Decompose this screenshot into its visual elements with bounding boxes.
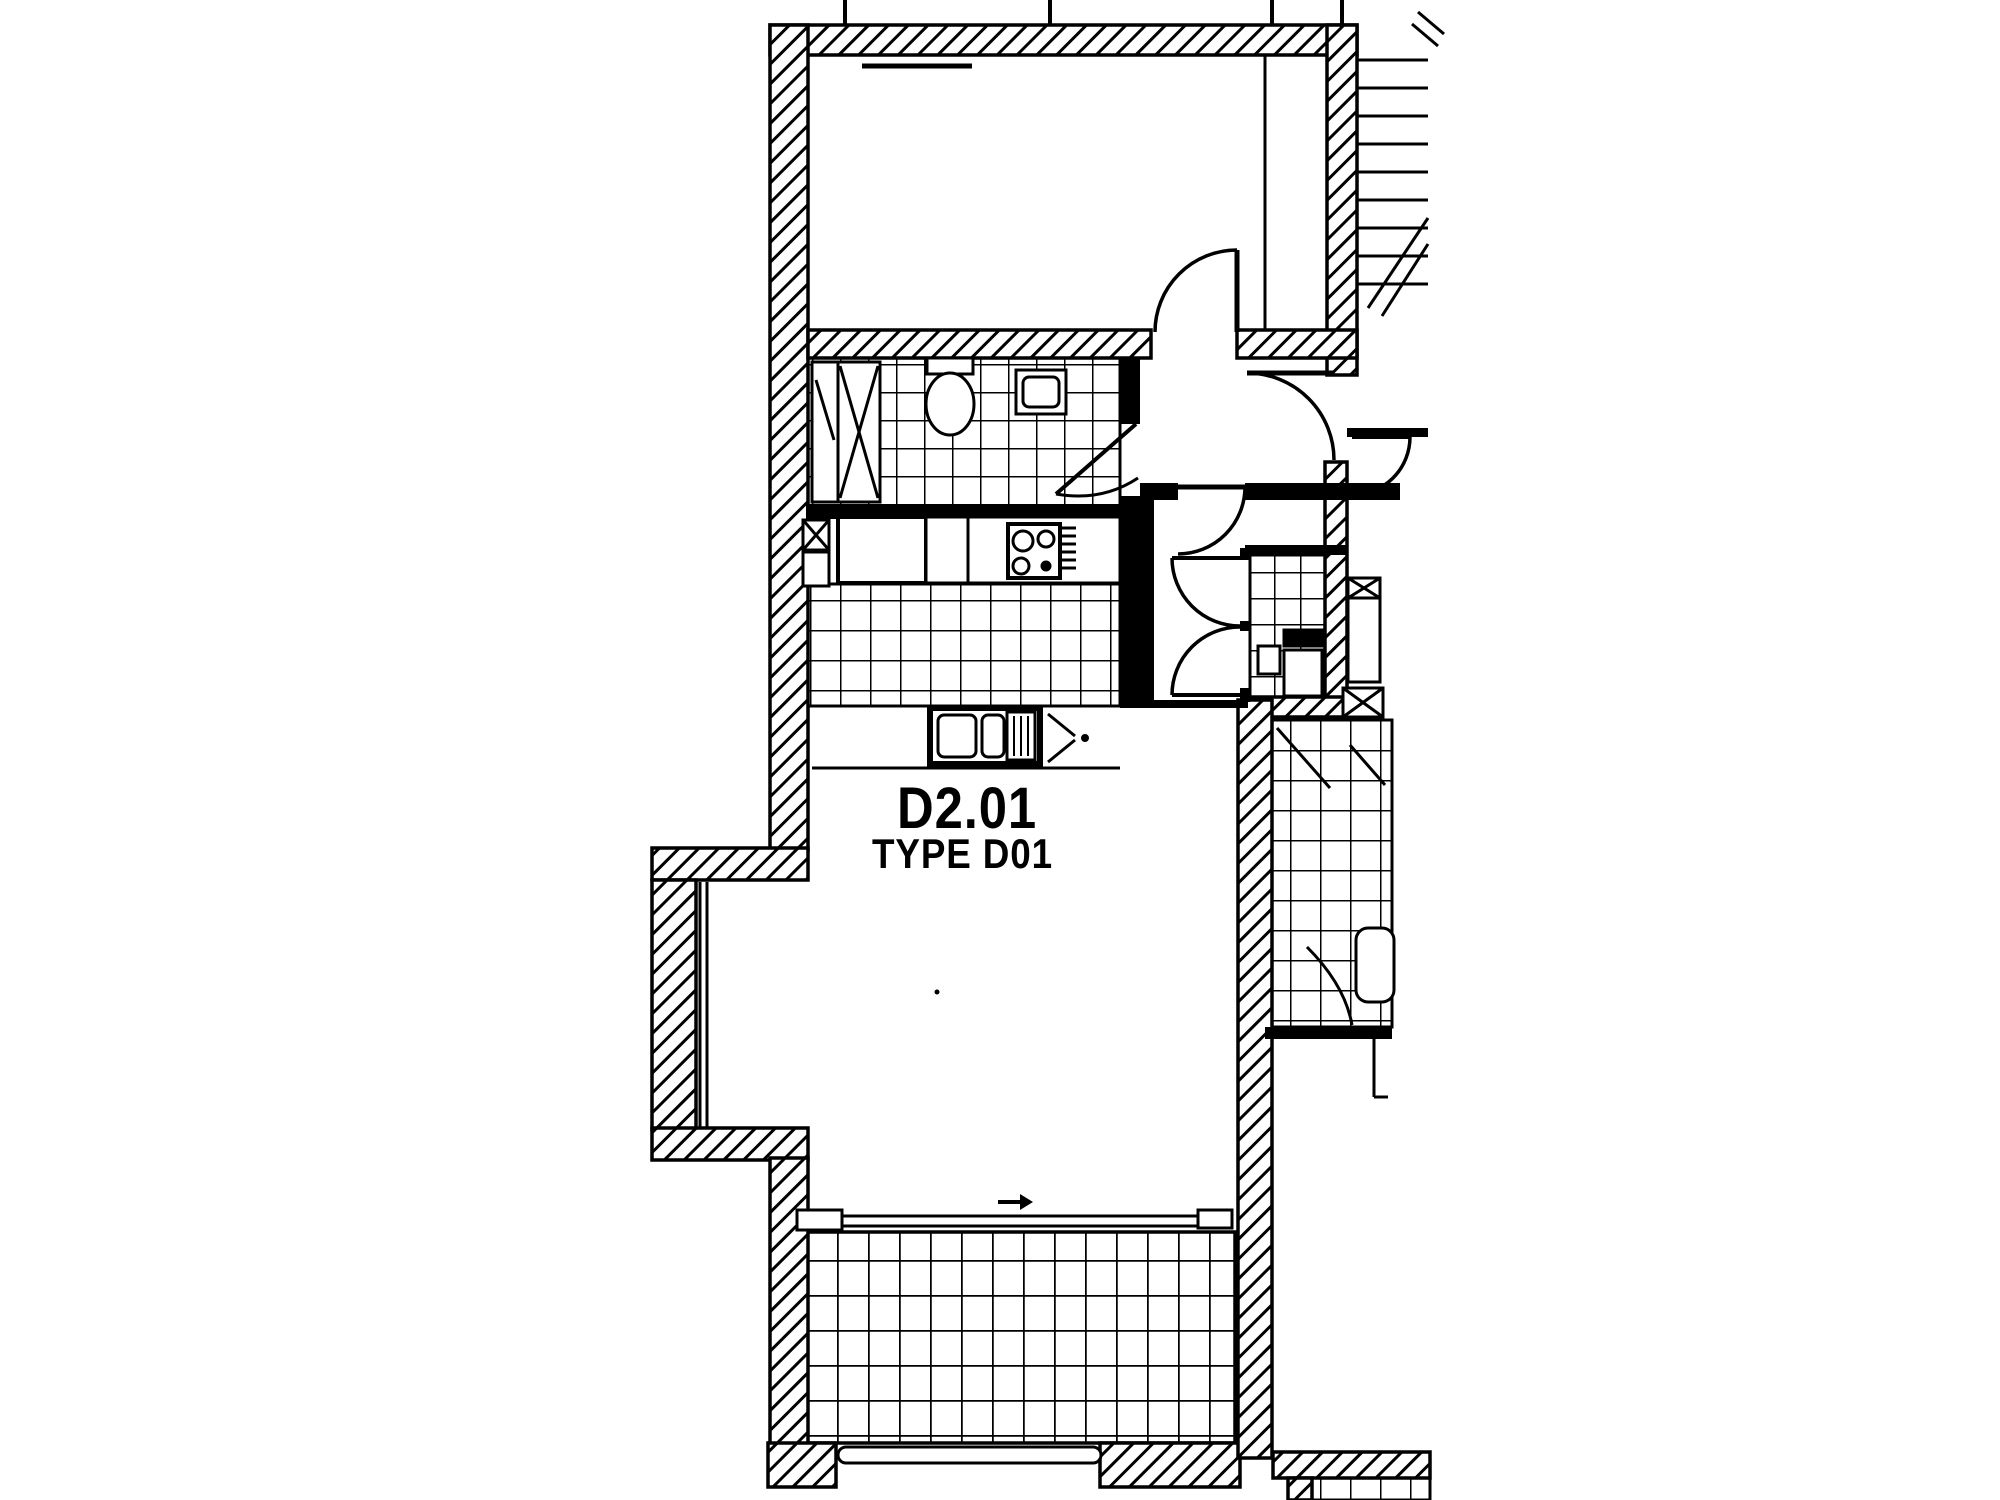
balcony-railing: [838, 1447, 1101, 1463]
wall-bedroom-bottom-left: [808, 330, 1151, 358]
wall-bathroom-right-upper: [1120, 358, 1140, 424]
wall-top: [770, 25, 1357, 55]
wall-wc-top: [1245, 545, 1347, 555]
wall-wc-post-a: [1240, 548, 1250, 560]
unit-labels: D2.01 TYPE D01: [872, 776, 1053, 877]
survey-dot: [935, 990, 940, 995]
balcony-floor: [800, 1232, 1235, 1443]
stove-burner-4: [1042, 562, 1050, 570]
wall-hall-left: [1140, 500, 1154, 705]
balcony-wall-block-right: [1198, 1210, 1232, 1228]
toilet-fixture: [926, 373, 974, 435]
wall-hall-bottom-line: [1140, 700, 1248, 708]
duct-shaft: [1348, 598, 1380, 682]
floor-plan-page: D2.01 TYPE D01: [0, 0, 2000, 1500]
wall-bay-top: [652, 848, 808, 880]
wall-bedroom-bottom-right: [1237, 330, 1357, 358]
wall-bay-bottom: [652, 1128, 808, 1160]
wall-hall-stub: [1140, 483, 1178, 500]
wall-right-lower: [1238, 700, 1272, 1458]
dishwasher-dot: [1083, 736, 1088, 741]
neighbor-bathtub: [1356, 928, 1394, 1002]
wall-left-upper: [770, 25, 808, 850]
wall-balcony-bottom-left: [768, 1443, 836, 1487]
unit-type-label: TYPE D01: [872, 830, 1053, 877]
wall-neighbor-balcony: [1273, 1452, 1430, 1478]
wall-bay-left: [652, 880, 696, 1130]
wc-cistern: [1284, 630, 1322, 646]
kitchen-fridge-column: [803, 552, 829, 586]
wall-wc-post-b: [1240, 621, 1250, 631]
kitchen-floor: [806, 584, 1120, 706]
neighbor-balcony-floor: [1312, 1478, 1430, 1500]
wall-neighbor-balcony-stub: [1288, 1478, 1312, 1500]
wc-toilet: [1284, 650, 1322, 696]
balcony-wall-block-left: [797, 1210, 842, 1230]
wall-right-upper: [1327, 25, 1357, 375]
wc-sink: [1258, 646, 1280, 674]
wall-balcony-bottom-right: [1100, 1443, 1240, 1487]
kitchen-cabinet-block: [838, 517, 926, 583]
wall-kitchen-right: [1120, 496, 1140, 708]
wall-wc-post-c: [1240, 688, 1250, 702]
floor-plan-canvas: D2.01 TYPE D01: [0, 0, 2000, 1500]
wall-left-lower: [770, 1158, 808, 1448]
